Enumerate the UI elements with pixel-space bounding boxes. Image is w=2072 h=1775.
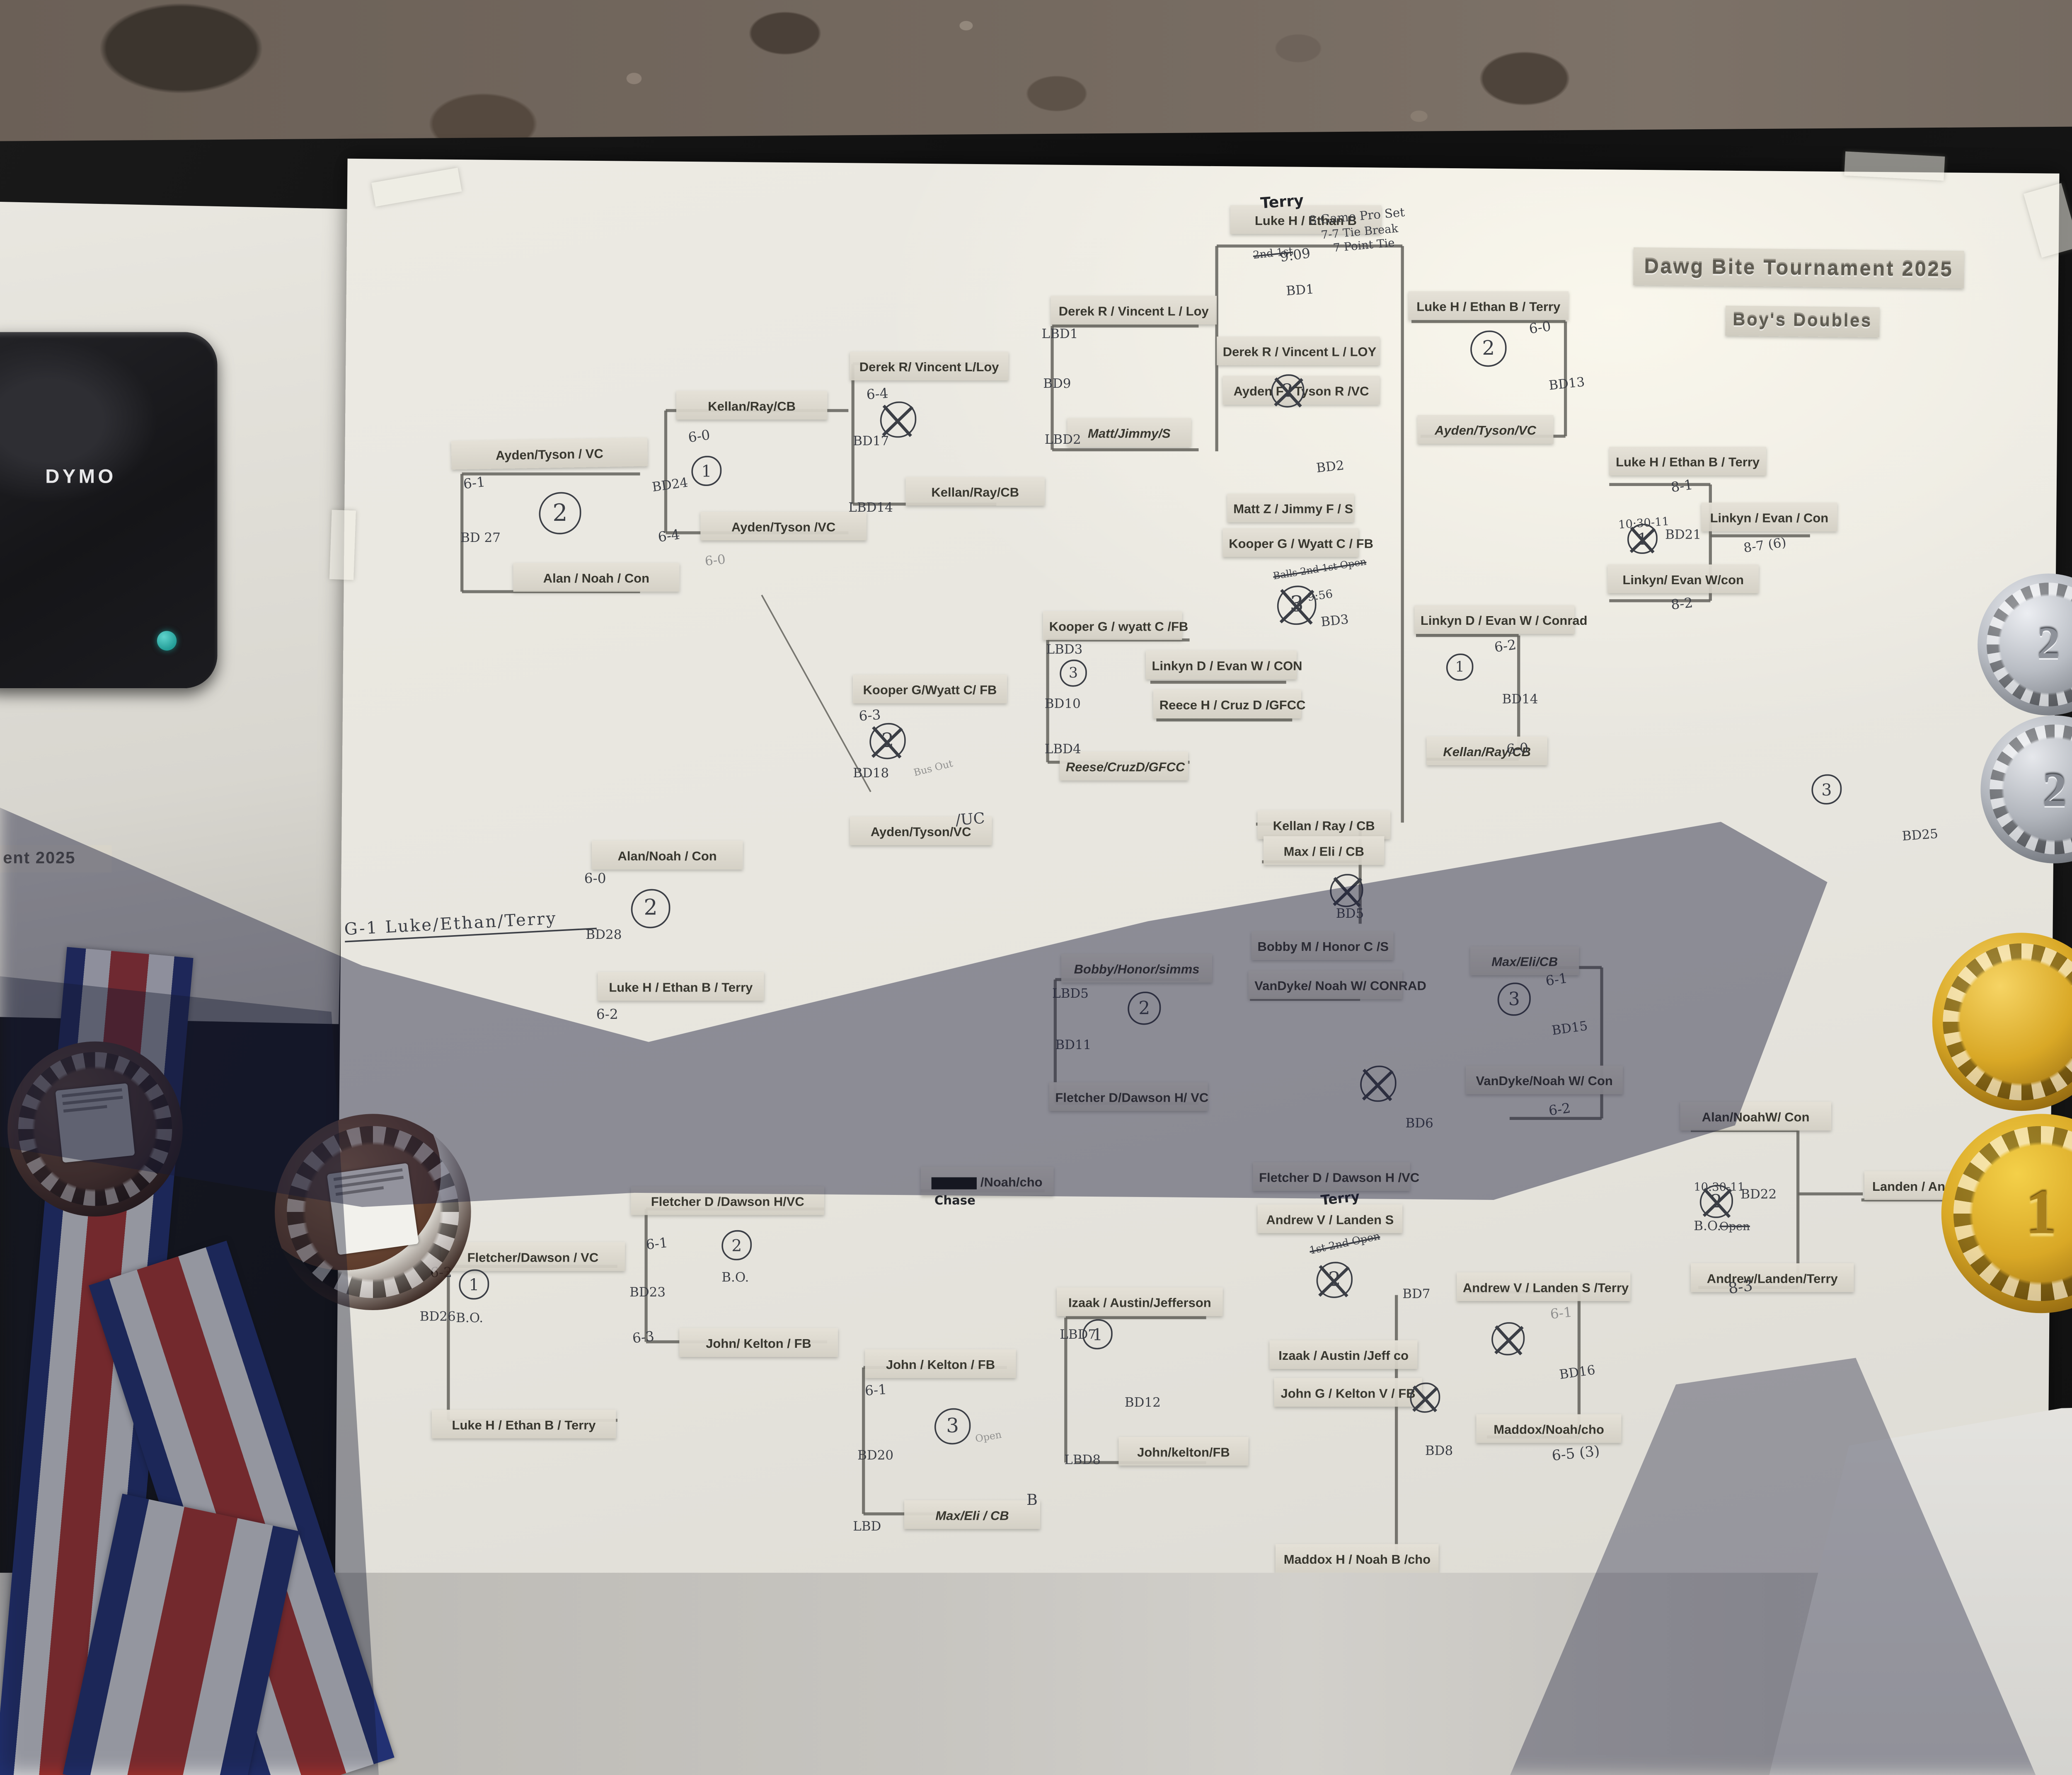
handwritten-note: 6-2 bbox=[596, 1008, 618, 1023]
bracket-label: Andrew V / Landen S bbox=[1258, 1204, 1403, 1233]
handwritten-note: LBD3 bbox=[1046, 643, 1083, 658]
handwritten-note: BD18 bbox=[853, 767, 889, 782]
handwritten-note: BD23 bbox=[629, 1286, 666, 1301]
seed-circle: 2 bbox=[721, 1230, 752, 1260]
handwritten-note: 6-0 bbox=[687, 429, 711, 447]
gold-medal: 1 bbox=[1941, 1114, 2072, 1313]
medal-place-number: 2 bbox=[1980, 716, 2072, 863]
bracket-line bbox=[1710, 535, 1810, 537]
bracket-label: John/ Kelton / FB bbox=[679, 1328, 838, 1357]
bracket-line bbox=[862, 1367, 864, 1514]
crossed-seed-circle: 2 bbox=[1271, 374, 1304, 407]
seed-circle: 2 bbox=[539, 492, 581, 534]
bracket-line bbox=[665, 411, 666, 533]
stage: ent 2025 DYMO Dawg Bite Tournament 2025 … bbox=[0, 0, 2072, 1775]
handwritten-note: BD28 bbox=[586, 928, 622, 943]
photo-scene: ent 2025 DYMO Dawg Bite Tournament 2025 … bbox=[0, 0, 2072, 1775]
handwritten-note: LBD1 bbox=[1042, 328, 1078, 343]
seed-circle: 1 bbox=[691, 456, 721, 486]
bracket-label: Luke H / Ethan B / Terry bbox=[432, 1410, 616, 1439]
handwritten-note: 6-4 bbox=[657, 528, 681, 546]
bracket-label: Matt/Jimmy/S bbox=[1067, 418, 1191, 447]
bracket-line bbox=[1402, 246, 1403, 634]
crossed-seed-circle bbox=[1491, 1322, 1525, 1355]
crossed-seed-circle: 2 bbox=[869, 723, 905, 759]
bracket-label: Maddox/Noah/cho bbox=[1477, 1414, 1622, 1443]
crossed-seed-circle: 3 bbox=[1277, 585, 1317, 625]
handwritten-note: 6-1 bbox=[463, 476, 486, 493]
crossed-seed-circle bbox=[1410, 1383, 1440, 1413]
bracket-label: Linkyn D / Evan W / CON bbox=[1146, 651, 1297, 680]
bracket-subtitle: Boy's Doubles bbox=[1725, 306, 1879, 338]
handwritten-note: BD9 bbox=[1043, 377, 1071, 392]
handwritten-note: BD12 bbox=[1125, 1396, 1161, 1411]
seed-circle: 3 bbox=[934, 1408, 971, 1444]
bracket-label: Derek R/ Vincent L/Loy bbox=[850, 352, 1009, 381]
tape-strip bbox=[329, 510, 356, 580]
bracket-label: Kellan/Ray/CB bbox=[676, 391, 827, 420]
bracket-label: Ayden/Tyson / VC bbox=[451, 438, 648, 470]
bracket-label: Kellan / Ray / CB bbox=[1258, 810, 1391, 839]
seed-circle: 3 bbox=[1811, 774, 1842, 805]
seed-circle: 2 bbox=[1470, 331, 1506, 367]
handwritten-note: 6-1 bbox=[645, 1236, 668, 1254]
bracket-label: Ayden/Tyson /VC bbox=[700, 512, 867, 541]
bracket-label: Matt Z / Jimmy F / S bbox=[1227, 493, 1354, 522]
bracket-line bbox=[1609, 600, 1710, 602]
tape-strip bbox=[1844, 151, 1945, 181]
handwritten-note: LBD4 bbox=[1045, 742, 1081, 757]
bracket-line bbox=[1052, 325, 1198, 327]
bracket-label: Kooper G / Wyatt C / FB bbox=[1223, 528, 1359, 557]
dymo-label-printer bbox=[0, 332, 218, 688]
bracket-line bbox=[1066, 1317, 1206, 1318]
bracket-label: Alan/Noah / Con bbox=[592, 841, 743, 870]
bracket-label: Max/Eli / CB bbox=[904, 1500, 1040, 1529]
handwritten-note: BD26 bbox=[420, 1310, 456, 1325]
tournament-title: Dawg Bite Tournament 2025 bbox=[1633, 247, 1964, 288]
handwritten-note: B.O. bbox=[456, 1312, 483, 1327]
handwritten-note: 6-3 bbox=[632, 1330, 655, 1347]
bracket-label: John G / Kelton V / FB bbox=[1274, 1378, 1422, 1407]
silver-medal: 2 bbox=[1978, 573, 2072, 715]
handwritten-note: BD8 bbox=[1425, 1444, 1453, 1459]
seed-circle: 1 bbox=[1082, 1319, 1113, 1349]
handwritten-note: 6-0 bbox=[584, 873, 606, 888]
bracket-label: Alan / Noah / Con bbox=[513, 563, 680, 592]
bracket-label: Derek R / Vincent L / Loy bbox=[1051, 296, 1217, 325]
bracket-line bbox=[1150, 681, 1286, 683]
handwritten-note: 6-4 bbox=[866, 387, 889, 404]
handwritten-note: LBD bbox=[853, 1520, 881, 1535]
crossed-seed-circle: 1 bbox=[1627, 524, 1658, 554]
bracket-line bbox=[1609, 484, 1710, 485]
bracket-line bbox=[448, 1266, 449, 1420]
bracket-line bbox=[1798, 1193, 1863, 1195]
handwritten-note: /UC bbox=[955, 811, 985, 829]
bracket-label: Linkyn/ Evan W/con bbox=[1608, 564, 1759, 593]
bracket-line bbox=[1395, 1295, 1397, 1562]
handwritten-note: 6-0 bbox=[1528, 320, 1552, 338]
handwritten-note: BD7 bbox=[1402, 1287, 1430, 1302]
bracket-label: Derek R / Vincent L / LOY bbox=[1217, 336, 1380, 365]
handwritten-note: BD25 bbox=[1902, 827, 1939, 845]
bracket-label: Andrew V / Landen S /Terry bbox=[1457, 1272, 1630, 1301]
handwritten-note: BD3 bbox=[1320, 613, 1350, 631]
handwritten-note: BD 27 bbox=[460, 531, 501, 546]
handwritten-note: 6-1 bbox=[1549, 1306, 1573, 1323]
handwritten-note: 8-3 bbox=[1728, 1278, 1754, 1298]
bracket-label: Luke H / Ethan B / Terry bbox=[1409, 291, 1569, 320]
bracket-label: Izaak / Austin/Jefferson bbox=[1057, 1287, 1223, 1316]
bracket-label: Luke H / Ethan B / Terry bbox=[1609, 447, 1766, 476]
bracket-line bbox=[1402, 634, 1403, 822]
bracket-line bbox=[462, 473, 640, 475]
bracket-label: Izaak / Austin /Jeff co bbox=[1270, 1340, 1418, 1369]
bracket-line bbox=[1052, 449, 1198, 450]
bracket-label: Maddox H / Noah B /cho bbox=[1276, 1544, 1438, 1573]
handwritten-note: B.O. bbox=[1694, 1219, 1721, 1234]
crossed-seed-circle: 2 bbox=[1700, 1185, 1733, 1218]
seed-circle: 2 bbox=[631, 889, 670, 929]
handwritten-note: BD2 bbox=[1316, 459, 1345, 477]
handwritten-note: Open bbox=[1719, 1219, 1750, 1233]
handwritten-note: Chase bbox=[934, 1194, 975, 1208]
handwritten-note: 8-1 bbox=[1670, 479, 1694, 496]
seed-circle: 1 bbox=[459, 1270, 489, 1300]
handwritten-note: 6-0 bbox=[1506, 742, 1529, 758]
bracket-line bbox=[852, 364, 854, 504]
bracket-label: Kooper G/Wyatt C/ FB bbox=[853, 675, 1007, 704]
handwritten-note: LBD2 bbox=[1045, 433, 1081, 448]
bracket-label: Max / Eli / CB bbox=[1264, 836, 1384, 865]
bracket-label: Luke H / Ethan B / Terry bbox=[598, 972, 764, 1001]
handwritten-note: BD20 bbox=[857, 1449, 893, 1464]
handwritten-note: Terry bbox=[1260, 193, 1305, 213]
handwritten-note: 6-2 bbox=[1493, 638, 1517, 656]
handwritten-note: 8-2 bbox=[1670, 597, 1694, 614]
bracket-label: Andrew/Landen/Terry bbox=[1691, 1263, 1854, 1292]
bracket-label: Kooper G / wyatt C /FB bbox=[1043, 611, 1182, 640]
handwritten-note: BD17 bbox=[853, 435, 889, 450]
handwritten-note: BD22 bbox=[1740, 1188, 1777, 1203]
handwritten-note: B.O. bbox=[721, 1271, 749, 1286]
handwritten-note: 6-1 bbox=[864, 1383, 887, 1400]
medal-place-number: 2 bbox=[1978, 573, 2072, 715]
dymo-power-button-icon bbox=[157, 631, 177, 651]
handwritten-note: BD21 bbox=[1665, 528, 1701, 543]
bracket-label: John/kelton/FB bbox=[1118, 1437, 1248, 1466]
bracket-line bbox=[1416, 634, 1519, 636]
seed-circle: 3 bbox=[1060, 660, 1087, 687]
handwritten-note: BD1 bbox=[1286, 283, 1315, 300]
bracket-label: Kellan/Ray/CB bbox=[906, 477, 1045, 506]
handwritten-note: 6-0 bbox=[704, 553, 726, 570]
seed-circle: 1 bbox=[1446, 653, 1474, 681]
bracket-label: Fletcher/Dawson / VC bbox=[441, 1242, 625, 1271]
handwritten-note: BD10 bbox=[1045, 697, 1081, 712]
bracket-line bbox=[645, 1209, 647, 1342]
bracket-label: Linkyn D / Evan W / Conrad bbox=[1414, 605, 1574, 634]
handwritten-note: BD14 bbox=[1502, 693, 1538, 708]
handwritten-note: LBD14 bbox=[848, 501, 893, 516]
bracket-line bbox=[1156, 719, 1292, 721]
medal-place-number: 1 bbox=[1941, 1114, 2072, 1313]
bracket-label: John / Kelton / FB bbox=[865, 1349, 1016, 1378]
bracket-label: Linkyn / Evan / Con bbox=[1702, 503, 1837, 532]
bracket-label: Reece H / Cruz D /GFCC bbox=[1153, 690, 1301, 719]
dymo-logo: DYMO bbox=[45, 465, 116, 488]
handwritten-note: LBD8 bbox=[1064, 1453, 1101, 1468]
handwritten-note: 6-3 bbox=[859, 709, 881, 725]
handwritten-note: B bbox=[1026, 1493, 1038, 1509]
bracket-label: Ayden/Tyson/VC bbox=[1418, 415, 1554, 444]
silver-medal: 2 bbox=[1980, 716, 2072, 863]
crossed-seed-circle bbox=[880, 401, 916, 438]
crossed-seed-circle: 2 bbox=[1317, 1262, 1353, 1298]
